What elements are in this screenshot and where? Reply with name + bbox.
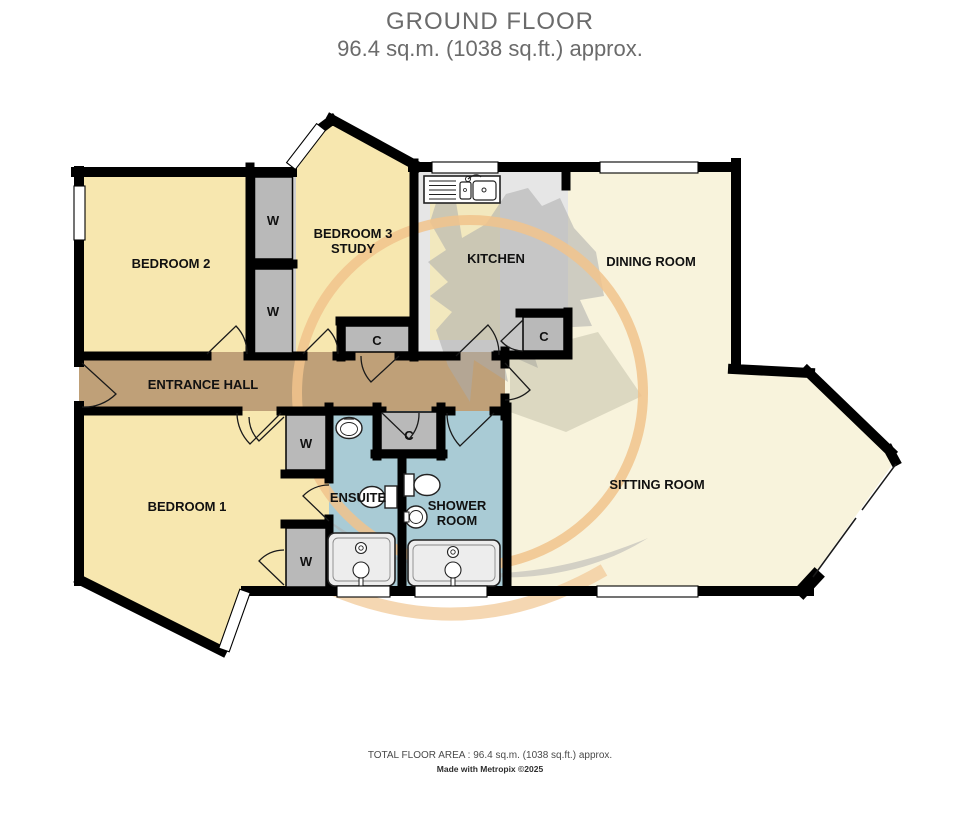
shower-room-toilet-icon <box>404 474 440 496</box>
label-kitchen: KITCHEN <box>467 251 525 266</box>
label-entrance-hall: ENTRANCE HALL <box>148 377 259 392</box>
floor-area-subtitle: 96.4 sq.m. (1038 sq.ft.) approx. <box>0 36 980 62</box>
label-shower-room-1: SHOWER <box>428 498 487 513</box>
metropix-credit: Made with Metropix ©2025 <box>0 764 980 774</box>
label-bedroom-3-study: STUDY <box>331 241 375 256</box>
shower-room-basin-icon <box>404 506 427 528</box>
label-sitting-room: SITTING ROOM <box>609 477 704 492</box>
total-floor-area: TOTAL FLOOR AREA : 96.4 sq.m. (1038 sq.f… <box>0 750 980 761</box>
floorplan-drawing: BEDROOM 2 BEDROOM 3 STUDY KITCHEN DINING… <box>0 0 980 815</box>
shower-room-window <box>415 586 487 597</box>
dining-window <box>600 162 698 173</box>
sitting-room-window <box>597 586 698 597</box>
label-cupboard-2: C <box>539 329 549 344</box>
bedroom2-window <box>74 186 85 240</box>
label-ensuite: ENSUITE <box>330 490 387 505</box>
label-shower-room-2: ROOM <box>437 513 477 528</box>
label-wardrobe-1: W <box>267 213 280 228</box>
label-bedroom-1: BEDROOM 1 <box>148 499 227 514</box>
ensuite-basin-icon <box>336 418 362 439</box>
ensuite-shower-tray-icon <box>328 533 395 587</box>
label-cupboard-3: C <box>404 428 414 443</box>
label-wardrobe-2: W <box>267 304 280 319</box>
label-wardrobe-4: W <box>300 554 313 569</box>
label-bedroom-3: BEDROOM 3 <box>314 226 393 241</box>
ensuite-window <box>337 586 390 597</box>
kitchen-sink-icon <box>424 175 500 203</box>
label-bedroom-2: BEDROOM 2 <box>132 256 211 271</box>
kitchen-window <box>432 162 498 173</box>
floorplan-page: GROUND FLOOR 96.4 sq.m. (1038 sq.ft.) ap… <box>0 0 980 815</box>
label-cupboard-1: C <box>372 333 382 348</box>
room-bedroom-1-floor <box>79 411 288 650</box>
label-dining-room: DINING ROOM <box>606 254 696 269</box>
shower-room-tray-icon <box>408 540 500 587</box>
floorplan-title: GROUND FLOOR 96.4 sq.m. (1038 sq.ft.) ap… <box>0 8 980 62</box>
label-wardrobe-3: W <box>300 436 313 451</box>
floor-name: GROUND FLOOR <box>0 8 980 36</box>
bay-corner <box>803 577 815 590</box>
